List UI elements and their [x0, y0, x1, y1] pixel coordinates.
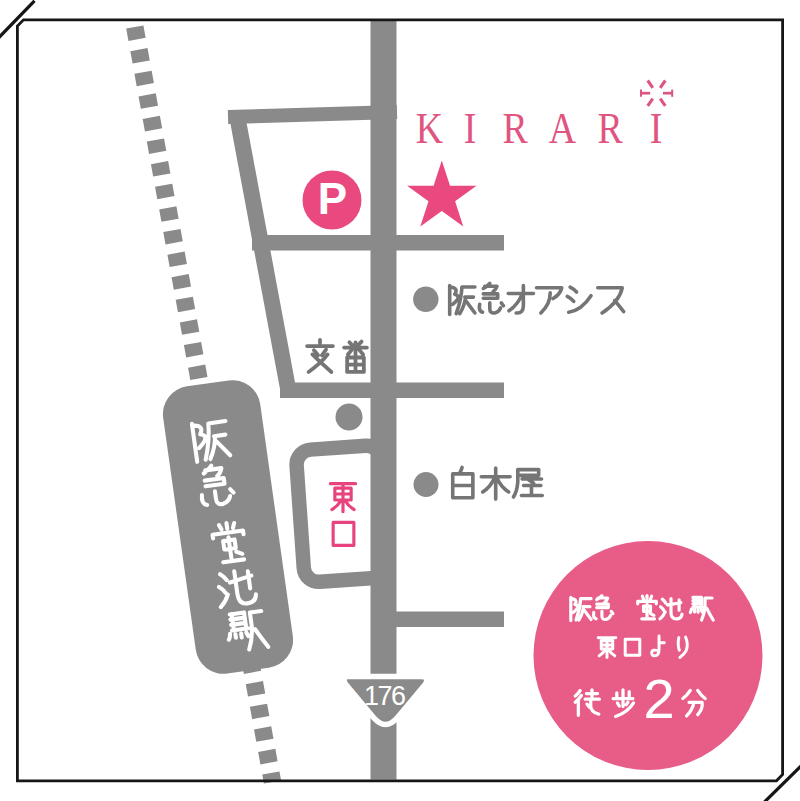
svg-text:I: I — [650, 103, 663, 153]
svg-text:2: 2 — [643, 667, 674, 730]
svg-text:P: P — [318, 174, 347, 223]
svg-text:R: R — [597, 103, 622, 153]
svg-text:I: I — [464, 103, 477, 153]
svg-text:A: A — [549, 103, 576, 153]
svg-text:K: K — [416, 103, 443, 153]
svg-text:176: 176 — [364, 681, 405, 711]
svg-text:R: R — [502, 103, 527, 153]
